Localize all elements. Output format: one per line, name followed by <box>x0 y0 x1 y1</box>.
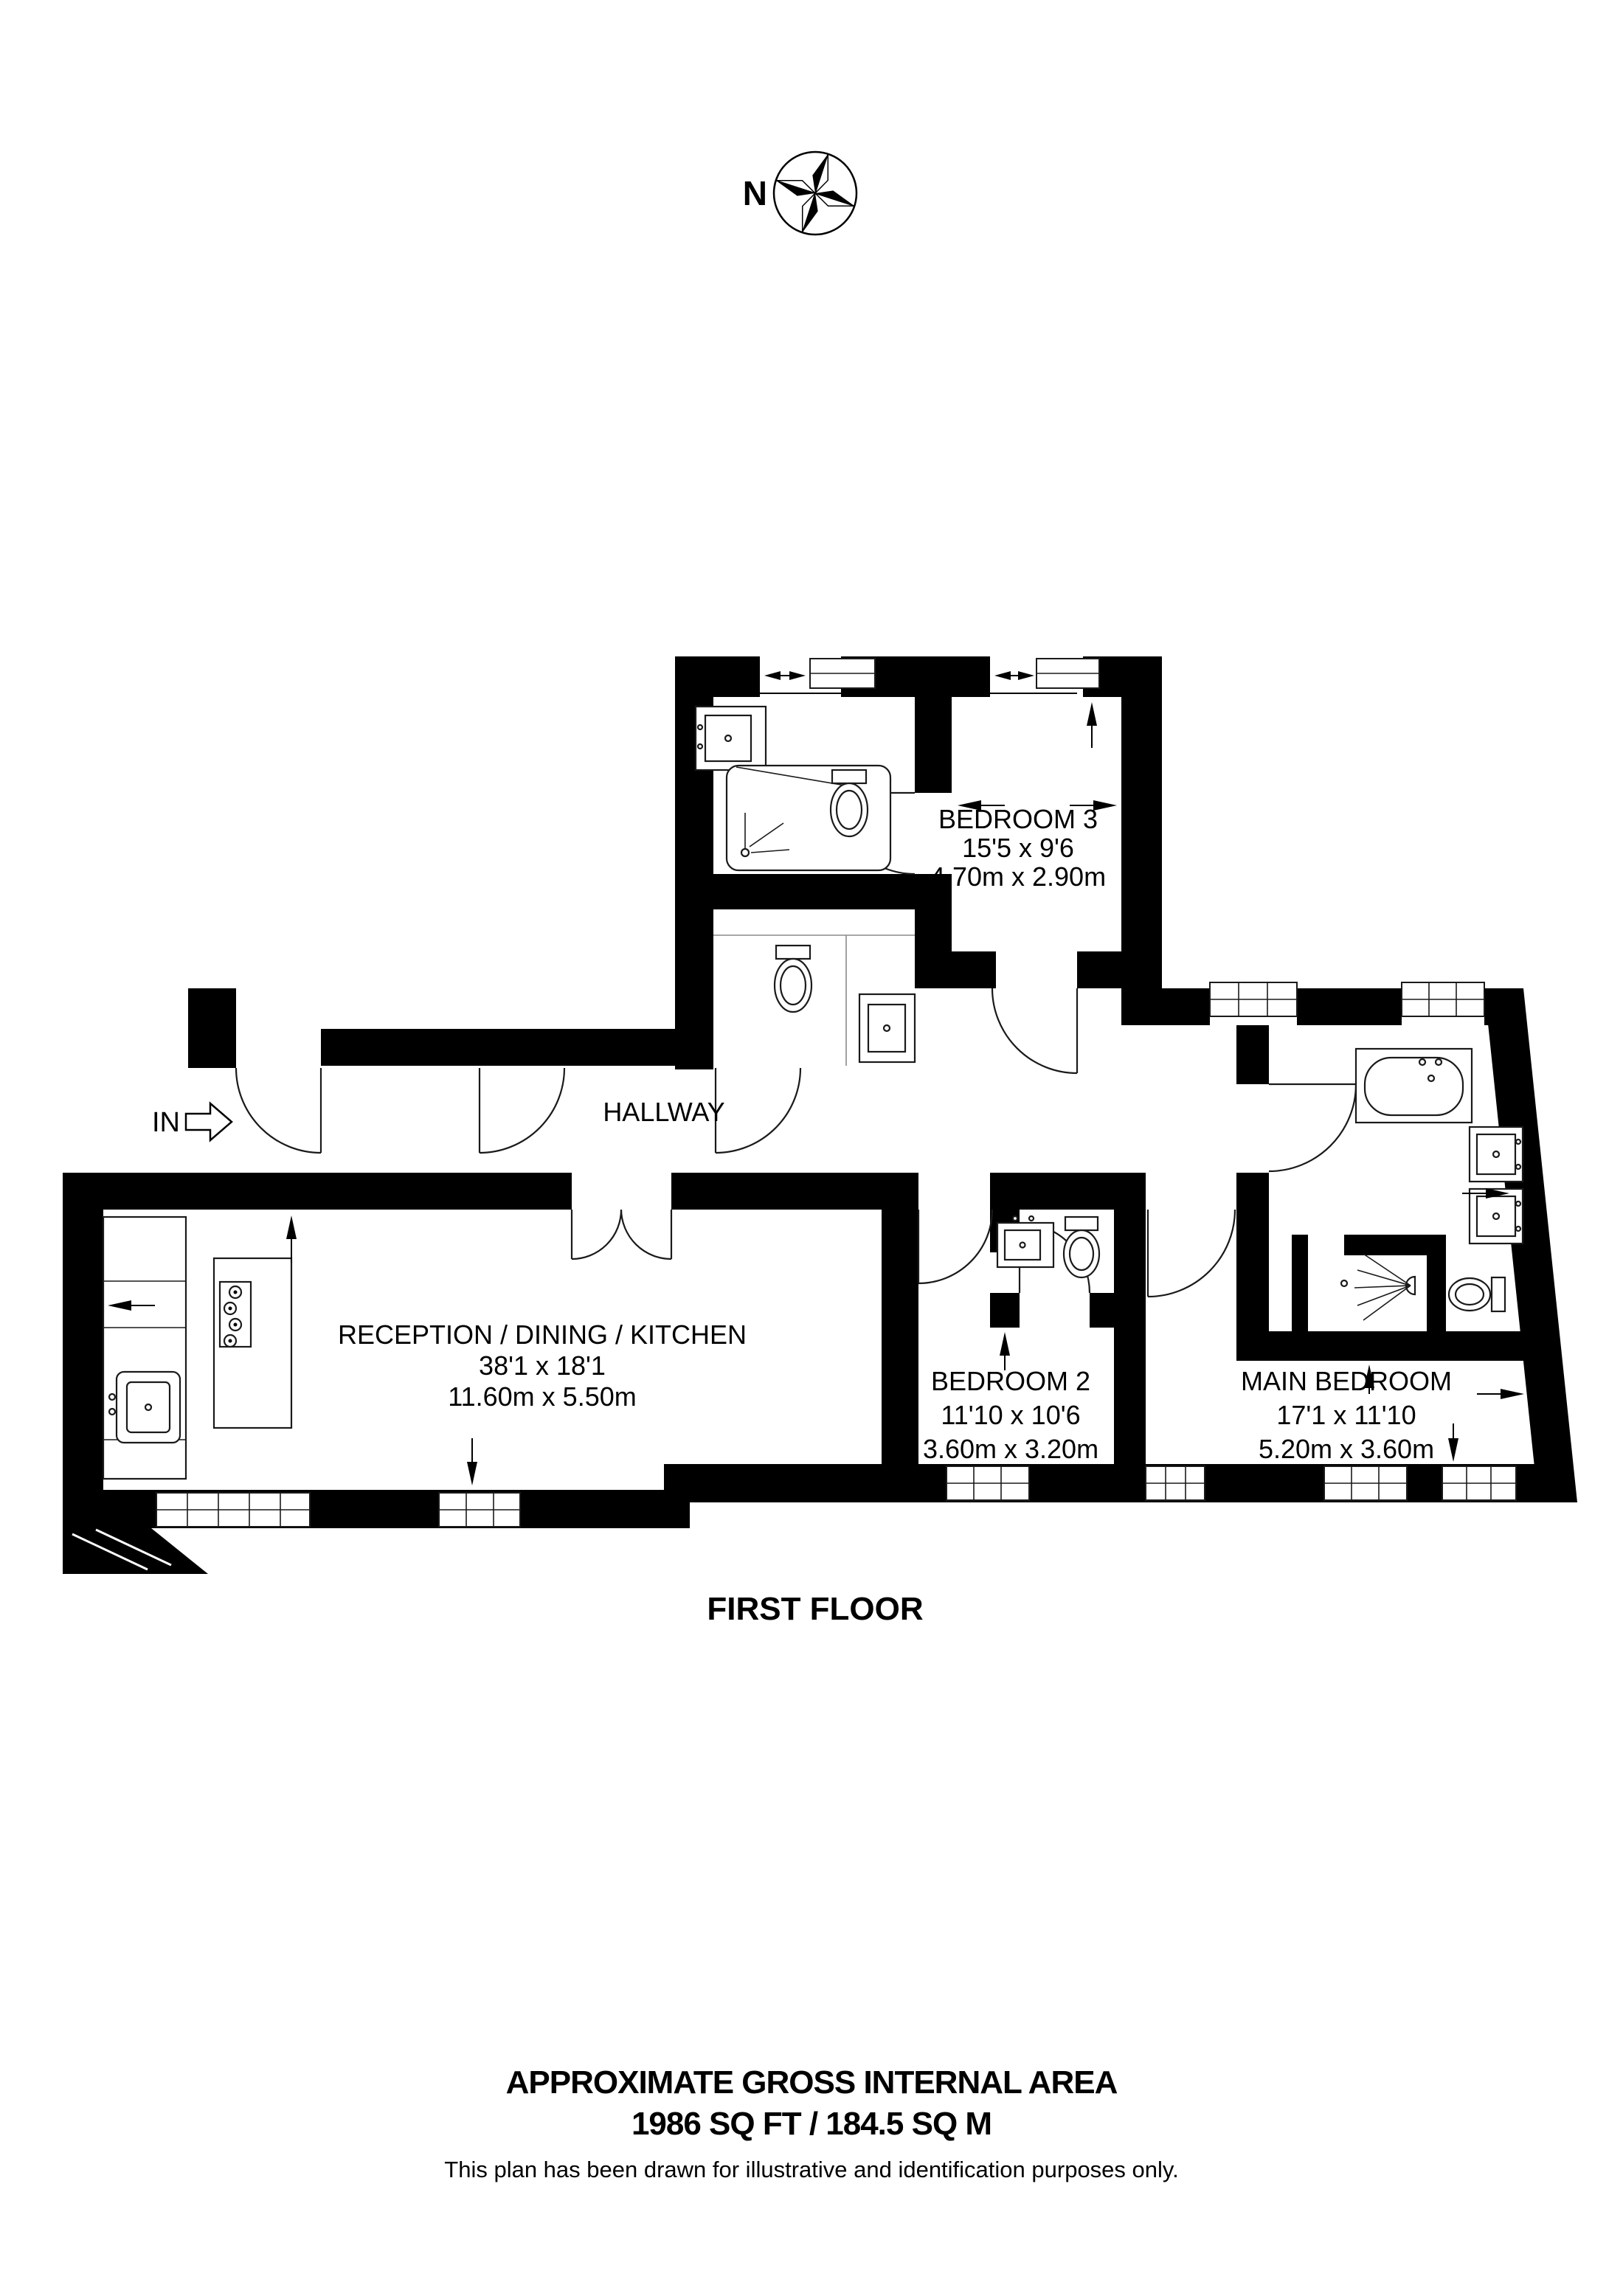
label-bedroom2-imperial: 11'10 x 10'6 <box>941 1400 1080 1430</box>
toilet-wc <box>775 946 811 1012</box>
window-bedroom3-top <box>990 659 1099 693</box>
window-bedroom2-bottom <box>947 1466 1029 1500</box>
label-bedroom3-metric: 4.70m x 2.90m <box>930 861 1106 892</box>
footer-disclaimer: This plan has been drawn for illustrativ… <box>444 2157 1178 2182</box>
door-bedroom3 <box>992 988 1077 1073</box>
label-reception-name: RECEPTION / DINING / KITCHEN <box>338 1319 747 1350</box>
window-reception-2 <box>439 1493 520 1527</box>
window-main-bedroom-bottom-1 <box>1324 1466 1407 1500</box>
door-entry <box>236 1068 321 1153</box>
kitchen-sink <box>109 1372 180 1443</box>
toilet-wing-bathroom <box>831 770 868 836</box>
label-main-bedroom-metric: 5.20m x 3.60m <box>1259 1434 1434 1464</box>
floor-title: FIRST FLOOR <box>707 1591 923 1627</box>
entry-marker: IN <box>152 1103 232 1140</box>
walls-main-top <box>188 988 1523 1068</box>
label-main-bedroom-imperial: 17'1 x 11'10 <box>1276 1400 1416 1430</box>
label-reception-imperial: 38'1 x 18'1 <box>479 1350 606 1381</box>
door-bedroom2 <box>918 1210 992 1283</box>
label-reception-metric: 11.60m x 5.50m <box>448 1381 636 1412</box>
door-wc-corridor <box>716 1068 800 1153</box>
footer-area-value: 1986 SQ FT / 184.5 SQ M <box>631 2106 992 2142</box>
window-corridor-bottom <box>1146 1466 1205 1500</box>
entry-label: IN <box>152 1107 180 1138</box>
sink-wc <box>859 994 915 1062</box>
door-main-bathroom <box>1269 1084 1356 1171</box>
door-vestibule <box>480 1068 564 1153</box>
toilet-bedroom2-ensuite <box>1064 1217 1099 1277</box>
footer-area-title: APPROXIMATE GROSS INTERNAL AREA <box>506 2064 1118 2101</box>
window-main-bedroom-bottom-2 <box>1442 1466 1516 1500</box>
bathtub-main <box>1356 1049 1472 1123</box>
compass-north-label: N <box>743 174 767 212</box>
floorplan-page: N <box>0 0 1623 2296</box>
toilet-main-bathroom <box>1449 1277 1505 1311</box>
sink-main-bathroom-1 <box>1470 1127 1523 1182</box>
door-main-bedroom <box>1148 1210 1235 1297</box>
floorplan-canvas: N <box>0 0 1623 2296</box>
sink-bedroom2-ensuite <box>997 1216 1053 1267</box>
label-bedroom2-name: BEDROOM 2 <box>931 1366 1090 1396</box>
shower-main-bathroom <box>1341 1254 1415 1320</box>
label-hallway-name: HALLWAY <box>603 1097 724 1127</box>
label-bedroom3-name: BEDROOM 3 <box>938 804 1098 834</box>
window-reception-1 <box>156 1493 310 1527</box>
compass-rose-icon: N <box>743 141 868 245</box>
sink-main-bathroom-2 <box>1470 1189 1523 1244</box>
door-reception-double <box>572 1210 671 1259</box>
sink-wing-bathroom <box>696 707 766 770</box>
kitchen-island <box>214 1258 291 1428</box>
window-bathroom-top <box>760 659 875 693</box>
window-bathroom-main-top-2 <box>1402 982 1484 1016</box>
label-bedroom2-metric: 3.60m x 3.20m <box>923 1434 1098 1464</box>
entry-arrow-icon <box>186 1103 232 1140</box>
label-bedroom3-imperial: 15'5 x 9'6 <box>962 833 1074 863</box>
label-main-bedroom-name: MAIN BEDROOM <box>1241 1366 1452 1396</box>
window-bathroom-main-top-1 <box>1210 982 1297 1016</box>
footer-block: APPROXIMATE GROSS INTERNAL AREA 1986 SQ … <box>444 2064 1178 2182</box>
